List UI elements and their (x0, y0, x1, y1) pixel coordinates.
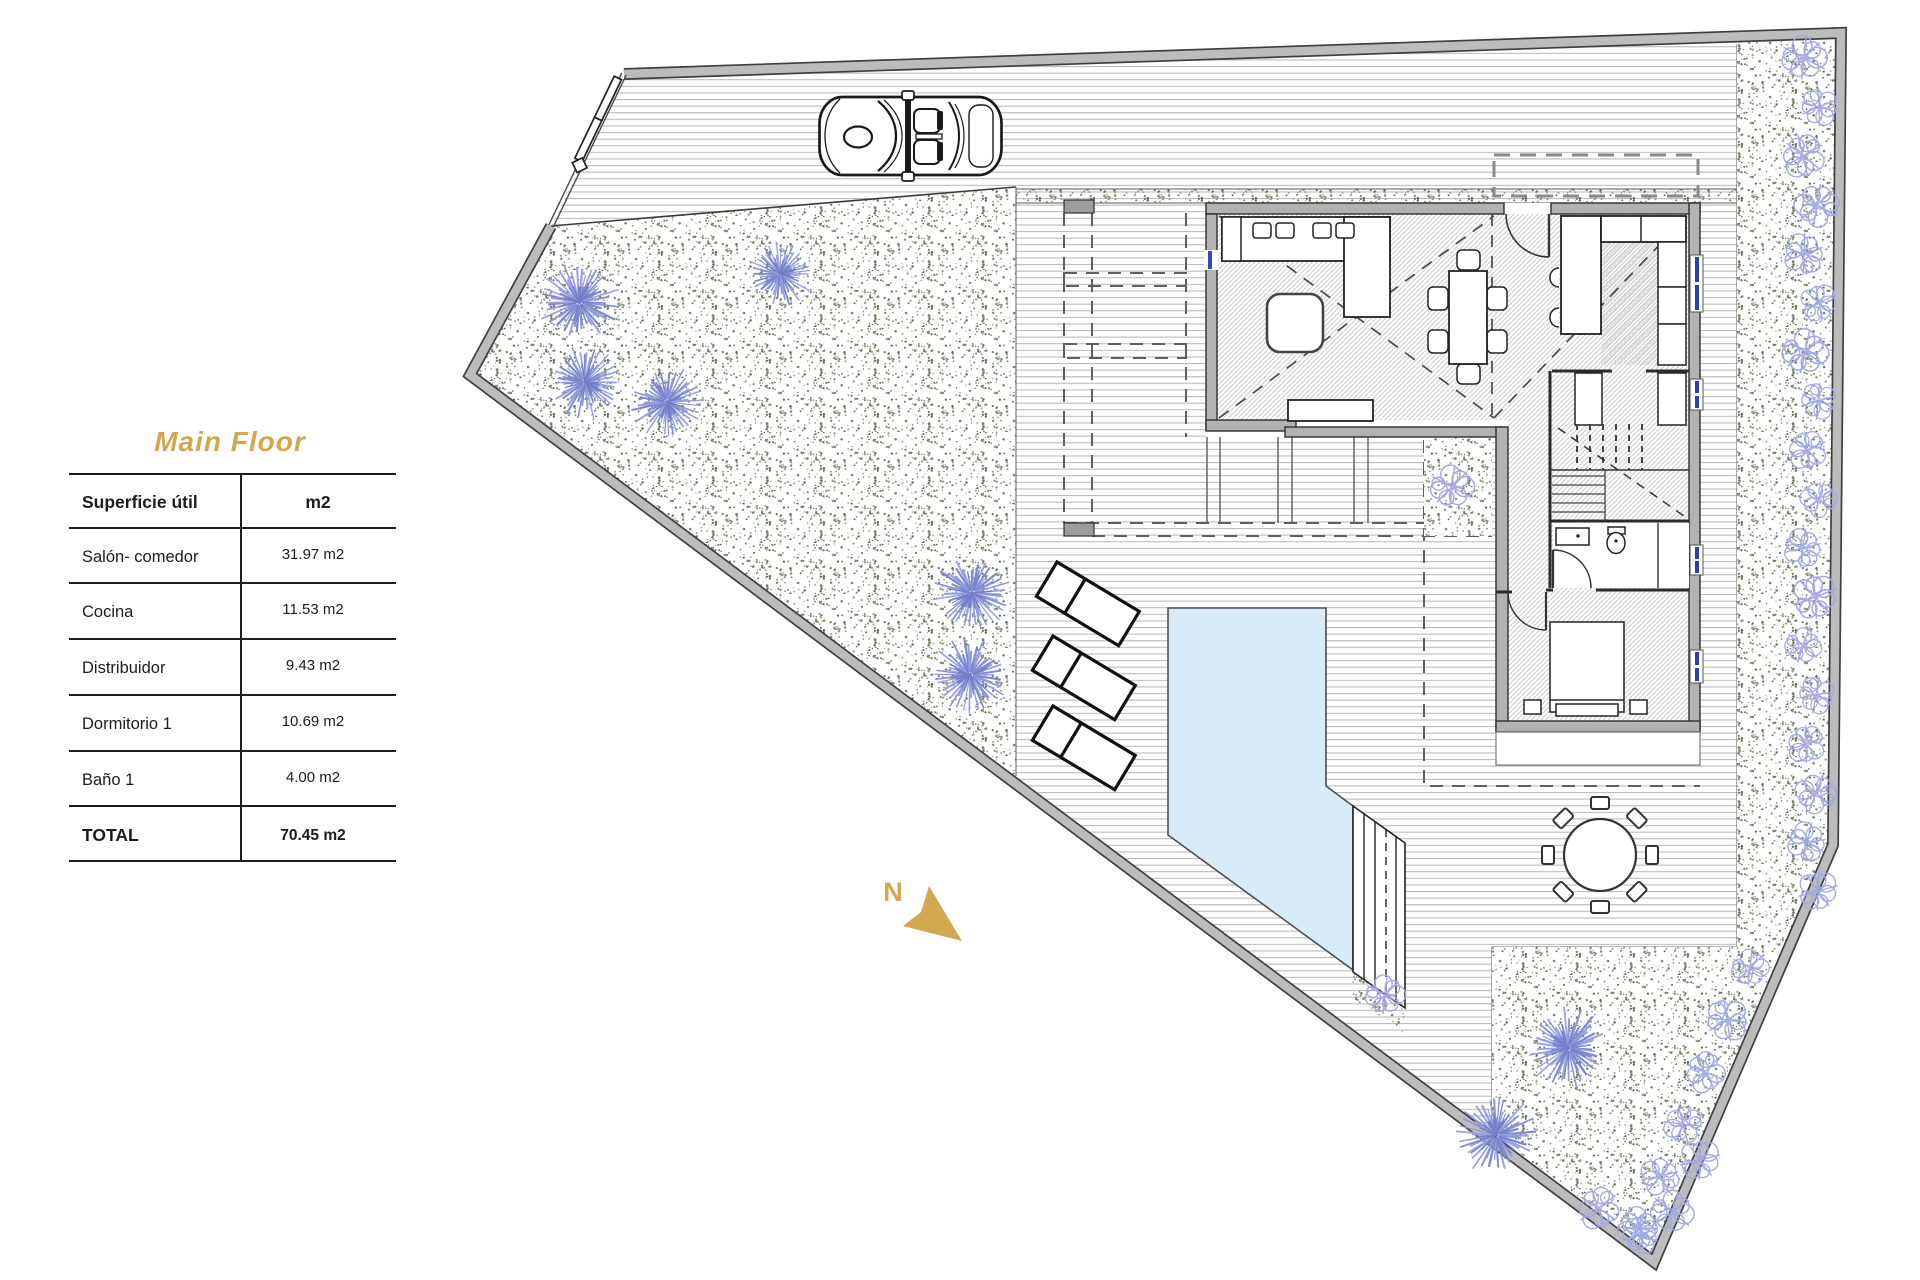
svg-text:Superficie útil: Superficie útil (82, 492, 198, 512)
svg-text:4.00 m2: 4.00 m2 (286, 769, 340, 786)
svg-text:31.97 m2: 31.97 m2 (282, 546, 345, 563)
svg-text:Main Floor: Main Floor (154, 426, 307, 457)
svg-text:11.53 m2: 11.53 m2 (282, 601, 343, 618)
svg-text:Distribuidor: Distribuidor (82, 659, 166, 677)
svg-text:Cocina: Cocina (82, 603, 134, 621)
svg-text:Baño 1: Baño 1 (82, 771, 134, 789)
svg-text:10.69 m2: 10.69 m2 (282, 713, 345, 730)
svg-text:N: N (883, 877, 903, 907)
svg-text:Salón- comedor: Salón- comedor (82, 548, 199, 566)
svg-text:9.43 m2: 9.43 m2 (286, 657, 340, 674)
svg-text:70.45 m2: 70.45 m2 (280, 827, 346, 844)
svg-text:Dormitorio 1: Dormitorio 1 (82, 715, 172, 733)
svg-text:TOTAL: TOTAL (82, 825, 139, 845)
svg-text:m2: m2 (305, 492, 331, 512)
